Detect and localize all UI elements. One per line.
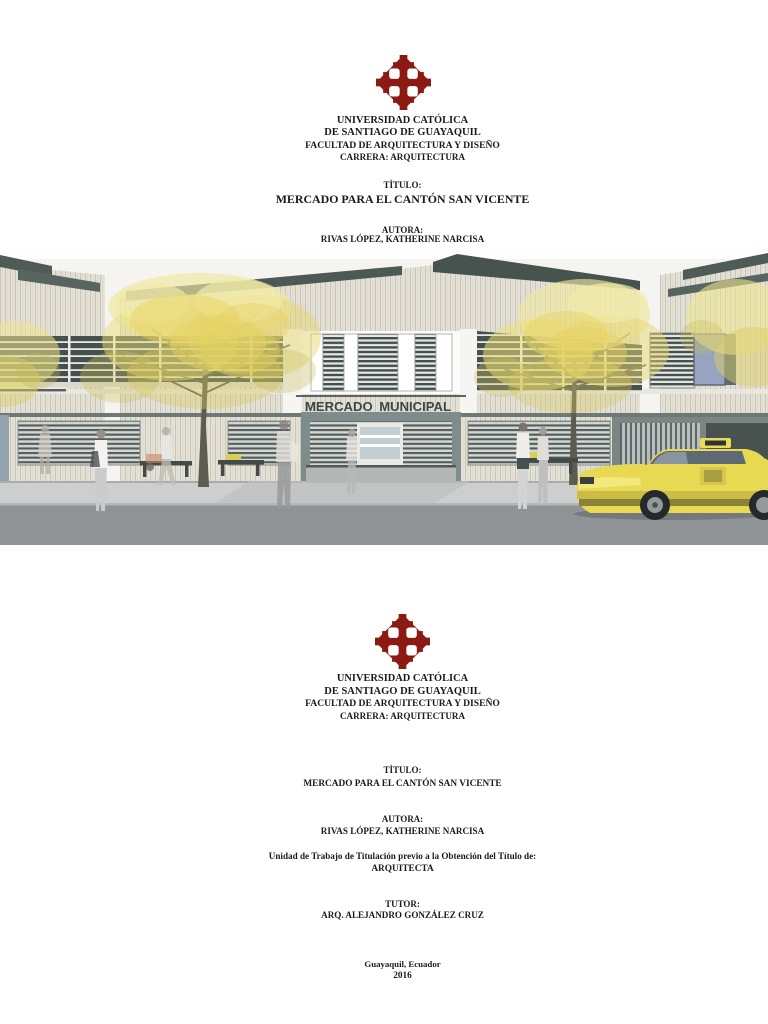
svg-text:MERCADO MUNICIPAL: MERCADO MUNICIPAL [305,399,451,414]
